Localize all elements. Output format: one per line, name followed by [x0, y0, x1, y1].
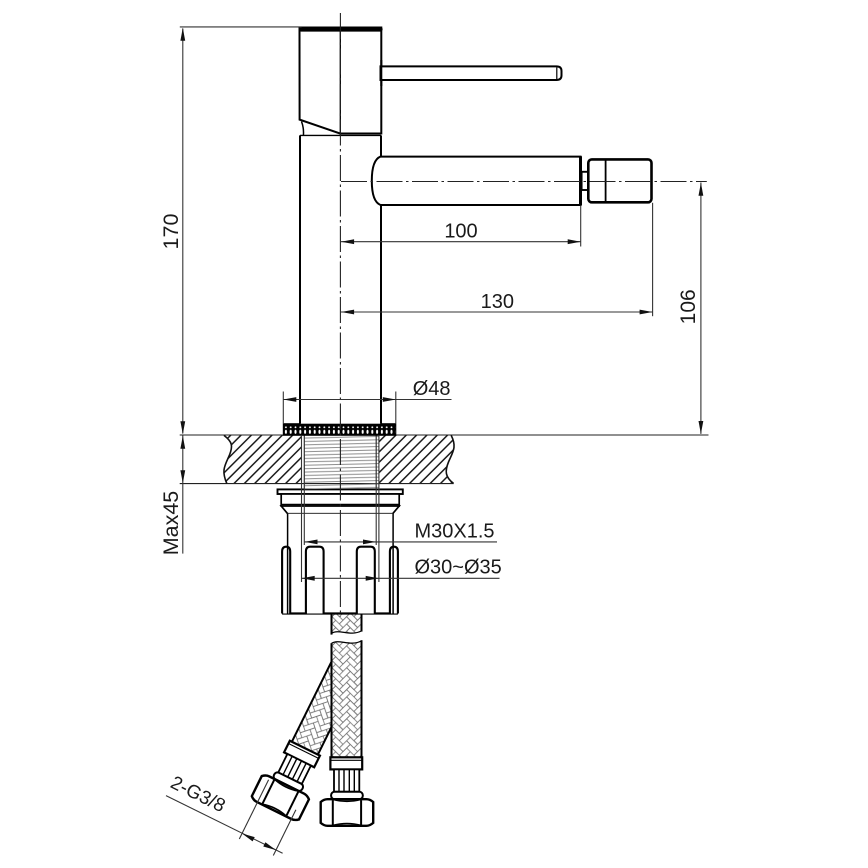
svg-text:Ø48: Ø48 [413, 378, 451, 400]
svg-text:170: 170 [159, 214, 183, 250]
svg-text:Ø30~Ø35: Ø30~Ø35 [415, 557, 502, 579]
svg-text:Max45: Max45 [159, 491, 183, 556]
svg-text:130: 130 [481, 291, 514, 313]
svg-text:M30X1.5: M30X1.5 [415, 521, 495, 543]
svg-text:100: 100 [444, 221, 477, 243]
svg-text:106: 106 [677, 289, 700, 324]
